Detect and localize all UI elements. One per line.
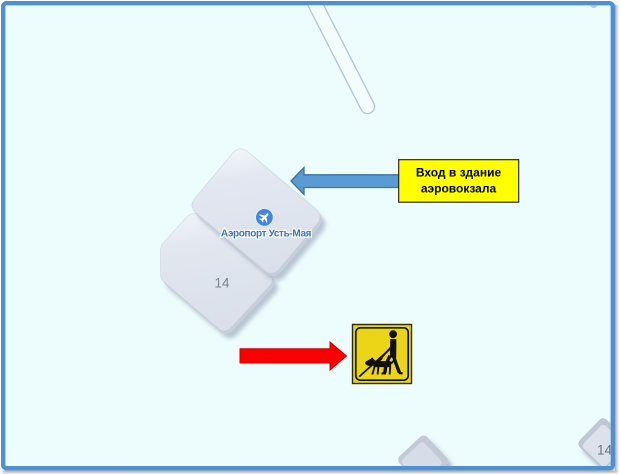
svg-text:Вход в здание: Вход в здание bbox=[416, 166, 502, 180]
svg-text:Аэропорт Усть-Мая: Аэропорт Усть-Мая bbox=[221, 229, 312, 240]
svg-text:аэровокзала: аэровокзала bbox=[421, 182, 497, 196]
svg-text:14: 14 bbox=[214, 276, 230, 291]
svg-text:14: 14 bbox=[597, 443, 613, 458]
